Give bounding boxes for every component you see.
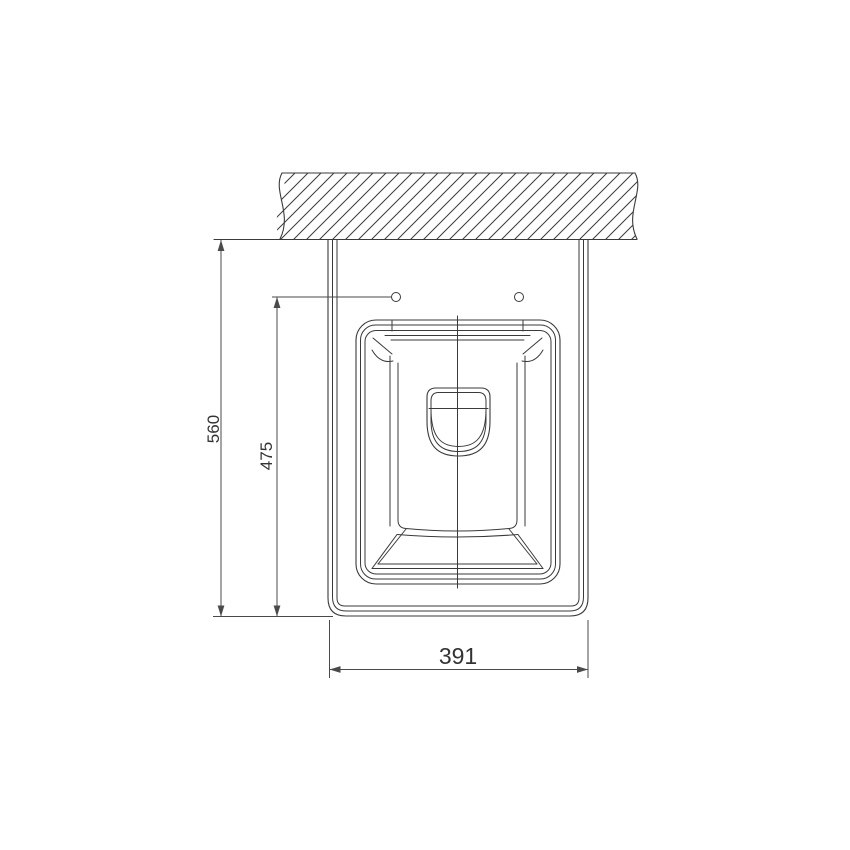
drain-outer-shape [427,388,490,456]
technical-drawing-page: 560 475 391 [0,0,850,850]
wall-section [214,173,638,240]
left-mounting-hole [392,293,401,302]
mounting-holes [392,293,524,302]
dim-391-arrow-right [577,666,588,673]
drain-outlet [427,388,490,456]
right-mounting-hole [515,293,524,302]
wall-hatch-fill [277,173,638,239]
bowl-wall-left-inner [398,363,406,529]
bowl-corner-chamfer-left [373,338,392,354]
dim-475-label: 475 [257,442,276,470]
dimension-391: 391 [330,620,589,678]
drain-inner-shape [431,393,486,452]
dim-391-arrow-left [330,666,341,673]
dim-560-label: 560 [204,415,223,443]
dim-560-arrow-bottom [218,606,225,617]
technical-drawing-canvas: 560 475 391 [0,0,850,850]
dim-391-label: 391 [439,643,477,669]
dim-560-arrow-top [218,240,225,251]
bowl-slope-right-inner [509,529,537,564]
dimension-560: 560 [204,240,224,617]
bowl-corner-chamfer-right [523,338,542,354]
bowl-slope-left-outer [372,535,397,569]
drain-bowl-arc [431,409,486,447]
bowl-slope-right-outer [518,535,543,569]
bowl-slope-left-inner [378,529,406,564]
dimension-475: 475 [257,297,392,617]
dim-475-arrow-bottom [274,606,281,617]
dim-475-arrow-top [274,297,281,308]
bowl-wall-right-inner [509,363,517,529]
